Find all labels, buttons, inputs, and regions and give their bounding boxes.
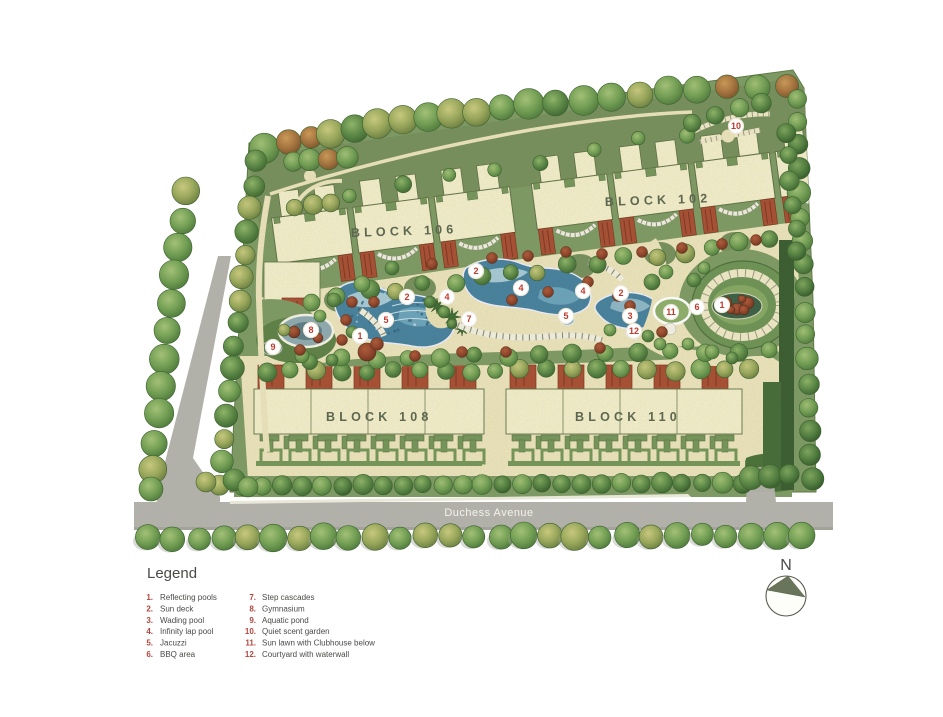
svg-text:1: 1 (357, 331, 362, 341)
svg-text:BLOCK 110: BLOCK 110 (575, 410, 681, 424)
svg-text:10: 10 (731, 121, 741, 131)
svg-text:6.: 6. (146, 650, 153, 659)
svg-text:2.: 2. (146, 604, 153, 613)
svg-text:4: 4 (444, 292, 449, 302)
svg-text:Quiet scent garden: Quiet scent garden (262, 627, 330, 636)
svg-text:5.: 5. (146, 639, 153, 648)
svg-text:Aquatic pond: Aquatic pond (262, 616, 309, 625)
svg-text:4.: 4. (146, 627, 153, 636)
svg-text:9.: 9. (249, 616, 256, 625)
svg-text:4: 4 (518, 283, 523, 293)
svg-text:Wading pool: Wading pool (160, 616, 204, 625)
svg-text:1.: 1. (146, 593, 153, 602)
svg-text:11: 11 (666, 307, 676, 317)
svg-text:2: 2 (473, 266, 478, 276)
svg-text:3: 3 (627, 311, 632, 321)
svg-text:Jacuzzi: Jacuzzi (160, 639, 187, 648)
svg-text:10.: 10. (245, 627, 256, 636)
svg-text:N: N (780, 557, 792, 574)
svg-text:Sun lawn with Clubhouse below: Sun lawn with Clubhouse below (262, 639, 375, 648)
svg-text:8.: 8. (249, 604, 256, 613)
svg-text:Reflecting pools: Reflecting pools (160, 593, 217, 602)
svg-text:9: 9 (270, 342, 275, 352)
svg-text:2: 2 (404, 292, 409, 302)
svg-text:3.: 3. (146, 616, 153, 625)
svg-text:11.: 11. (245, 639, 256, 648)
svg-text:Courtyard with waterwall: Courtyard with waterwall (262, 650, 349, 659)
svg-text:BLOCK 108: BLOCK 108 (326, 410, 433, 424)
svg-text:2: 2 (618, 288, 623, 298)
svg-text:5: 5 (563, 311, 568, 321)
svg-text:6: 6 (694, 302, 699, 312)
svg-text:8: 8 (308, 325, 313, 335)
svg-text:12.: 12. (245, 650, 256, 659)
svg-text:Gymnasium: Gymnasium (262, 604, 305, 613)
svg-text:7: 7 (466, 314, 471, 324)
svg-text:5: 5 (383, 315, 388, 325)
svg-text:12: 12 (629, 326, 639, 336)
svg-text:Legend: Legend (147, 565, 197, 582)
svg-text:Infinity lap pool: Infinity lap pool (160, 627, 214, 636)
svg-text:BBQ area: BBQ area (160, 650, 196, 659)
svg-text:Duchess Avenue: Duchess Avenue (444, 507, 533, 519)
svg-text:4: 4 (580, 286, 585, 296)
svg-text:Sun deck: Sun deck (160, 604, 194, 613)
svg-text:Step cascades: Step cascades (262, 593, 314, 602)
svg-text:7.: 7. (249, 593, 256, 602)
svg-text:1: 1 (719, 300, 724, 310)
